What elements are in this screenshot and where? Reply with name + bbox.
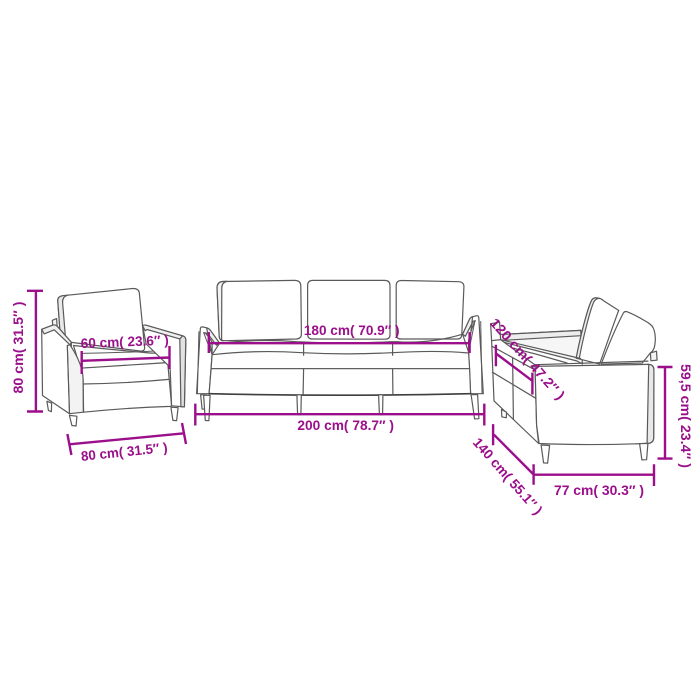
svg-text:200 cm( 78.7″ ): 200 cm( 78.7″ ) [297, 418, 394, 433]
svg-text:180 cm( 70.9″ ): 180 cm( 70.9″ ) [304, 323, 400, 338]
svg-text:80 cm( 31.5″ ): 80 cm( 31.5″ ) [11, 302, 26, 394]
svg-text:77 cm( 30.3″ ): 77 cm( 30.3″ ) [554, 483, 644, 498]
svg-text:59,5 cm( 23.4″ ): 59,5 cm( 23.4″ ) [678, 364, 693, 468]
